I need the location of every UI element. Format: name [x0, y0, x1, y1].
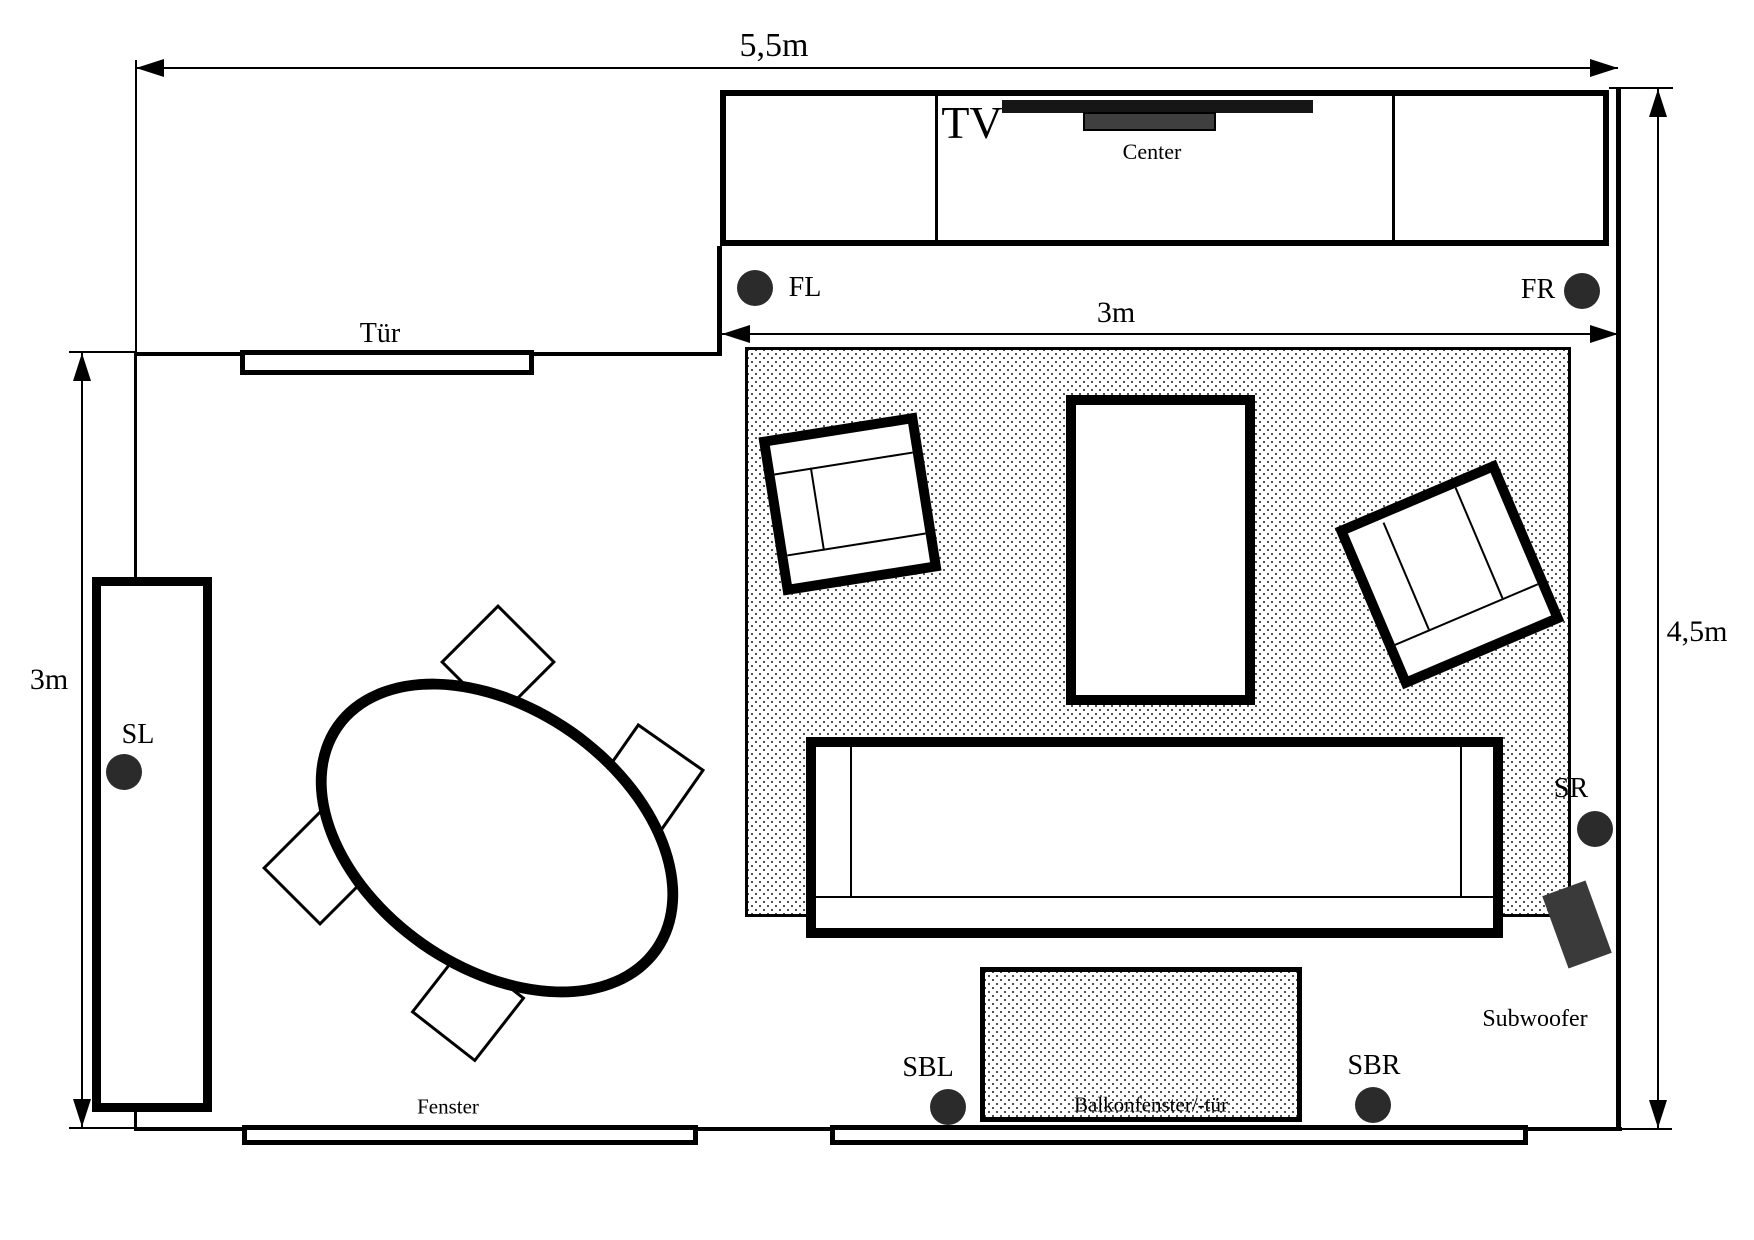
- sofa: [806, 737, 1503, 938]
- speaker-dot-surround-back-right: [1355, 1087, 1391, 1123]
- arrowhead-left-icon: [136, 59, 164, 77]
- sofa-seat-line: [816, 896, 1493, 898]
- speaker-dot-front-left: [737, 270, 773, 306]
- door-label: Tür: [360, 320, 400, 348]
- wall-right: [1616, 88, 1621, 1131]
- center-speaker-box: [1083, 112, 1216, 131]
- arrowhead-right-icon: [1590, 59, 1618, 77]
- speaker-label-surround-left: SL: [122, 721, 155, 749]
- cabinet-divider-left: [935, 96, 938, 240]
- extension-line-top-left: [135, 60, 137, 354]
- arrowhead-up-icon: [1649, 89, 1667, 117]
- dimension-label-left-height: 3m: [30, 665, 68, 695]
- door-symbol: [240, 350, 534, 375]
- balcony-window-label: Balkonfenster/-tür: [1074, 1095, 1228, 1116]
- dimension-label-room-width: 5,5m: [740, 29, 809, 63]
- subwoofer-box: [1542, 880, 1612, 968]
- speaker-dot-front-right: [1564, 273, 1600, 309]
- arrowhead-down-icon: [1649, 1100, 1667, 1128]
- extension-line-left-bottom: [69, 1127, 136, 1129]
- sofa-armrest-line: [1460, 747, 1462, 896]
- arrowhead-left-icon: [722, 325, 750, 343]
- armchair-front-line: [1395, 583, 1538, 645]
- dimension-label-carpet-width: 3m: [1097, 298, 1135, 328]
- speaker-label-front-left: FL: [789, 274, 822, 302]
- armchair-front-line: [787, 533, 926, 557]
- speaker-label-surround-right: SR: [1554, 775, 1588, 803]
- armchair-left: [758, 412, 941, 595]
- floor-plan: 5,5m 3m 3m 4,5m TV Center Tür Fenster Ba…: [0, 0, 1754, 1240]
- dimension-line-right-height: [1657, 89, 1659, 1128]
- shelf: [92, 577, 212, 1112]
- cabinet-divider-right: [1392, 96, 1395, 240]
- speaker-label-front-right: FR: [1521, 276, 1555, 304]
- subwoofer-label: Subwoofer: [1482, 1007, 1587, 1031]
- tv-label: TV: [941, 100, 1002, 146]
- speaker-label-surround-back-right: SBR: [1348, 1052, 1401, 1080]
- dimension-line-room-width: [136, 67, 1618, 69]
- wall-step-vertical: [717, 246, 722, 356]
- window-symbol-right: [830, 1125, 1528, 1145]
- sofa-armrest-line: [850, 747, 852, 896]
- window-symbol-left: [242, 1125, 698, 1145]
- dimension-line-left-height: [81, 353, 83, 1127]
- speaker-label-surround-back-left: SBL: [902, 1054, 953, 1082]
- arrowhead-down-icon: [73, 1099, 91, 1127]
- speaker-dot-surround-right: [1577, 811, 1613, 847]
- extension-line-right-bottom: [1621, 1128, 1672, 1130]
- armchair-armrest-line: [1383, 522, 1430, 630]
- dimension-label-right-height: 4,5m: [1667, 617, 1728, 647]
- center-speaker-label: Center: [1123, 141, 1182, 163]
- arrowhead-right-icon: [1590, 325, 1618, 343]
- speaker-dot-surround-back-left: [930, 1089, 966, 1125]
- dimension-line-carpet-width: [722, 333, 1618, 335]
- armchair-armrest-line: [810, 468, 825, 551]
- arrowhead-up-icon: [73, 353, 91, 381]
- armchair-armrest-line: [1455, 487, 1504, 598]
- speaker-dot-surround-left: [106, 754, 142, 790]
- coffee-table: [1066, 395, 1255, 705]
- armchair-backrest-line: [774, 452, 913, 476]
- window-label: Fenster: [417, 1097, 479, 1118]
